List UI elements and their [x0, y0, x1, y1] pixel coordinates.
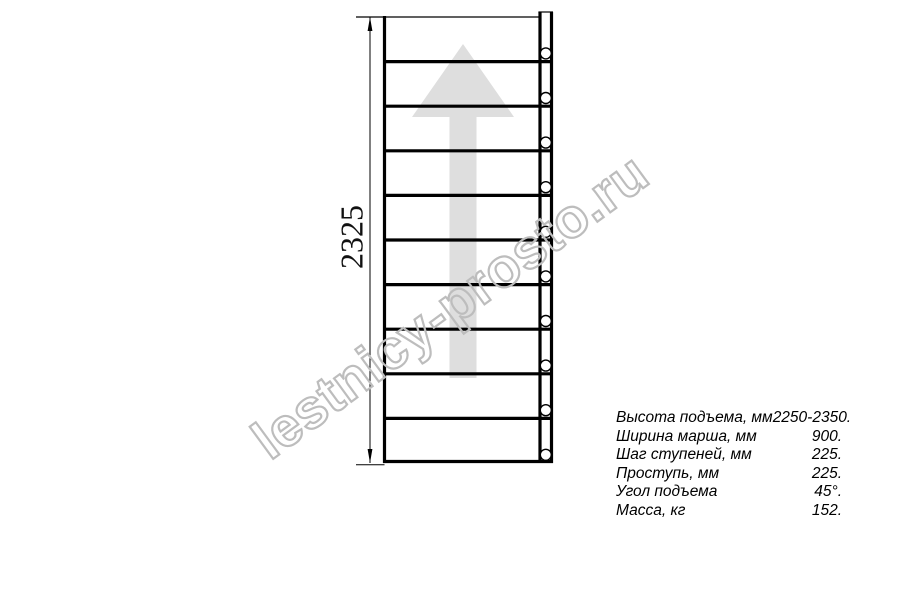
tread-circle — [540, 405, 551, 416]
tread-circle — [540, 316, 551, 327]
spec-value: 225. — [812, 465, 842, 484]
spec-value: 45°. — [814, 483, 842, 502]
spec-row: Высота подъема, мм 2250-2350. — [616, 409, 842, 428]
tread-circle — [540, 48, 551, 59]
spec-row: Угол подъема 45°. — [616, 483, 842, 502]
spec-row: Ширина марша, мм 900. — [616, 428, 842, 447]
spec-row: Проступь, мм 225. — [616, 465, 842, 484]
spec-label: Шаг ступеней, мм — [616, 446, 752, 465]
tread-circle — [540, 93, 551, 104]
technical-drawing-page: 2325 lestnicy-prosto.ru Высота подъема, … — [0, 0, 900, 600]
spec-value: 2250-2350. — [773, 409, 851, 428]
tread-circle — [540, 226, 551, 237]
spec-label: Ширина марша, мм — [616, 428, 757, 447]
spec-label: Угол подъема — [616, 483, 717, 502]
specs-table: Высота подъема, мм 2250-2350. Ширина мар… — [616, 409, 842, 520]
spec-label: Масса, кг — [616, 502, 685, 521]
spec-row: Масса, кг 152. — [616, 502, 842, 521]
spec-value: 225. — [812, 446, 842, 465]
dimension-arrowhead-top — [368, 17, 373, 31]
spec-label: Проступь, мм — [616, 465, 719, 484]
dimension-text: 2325 — [334, 205, 370, 269]
spec-value: 900. — [812, 428, 842, 447]
tread-circle — [540, 271, 551, 282]
spec-row: Шаг ступеней, мм 225. — [616, 446, 842, 465]
tread-circle — [540, 182, 551, 193]
spec-value: 152. — [812, 502, 842, 521]
spec-label: Высота подъема, мм — [616, 409, 773, 428]
dimension-arrowhead-bottom — [368, 449, 373, 463]
tread-circle — [540, 360, 551, 371]
tread-circle — [540, 137, 551, 148]
tread-circle — [540, 449, 551, 460]
